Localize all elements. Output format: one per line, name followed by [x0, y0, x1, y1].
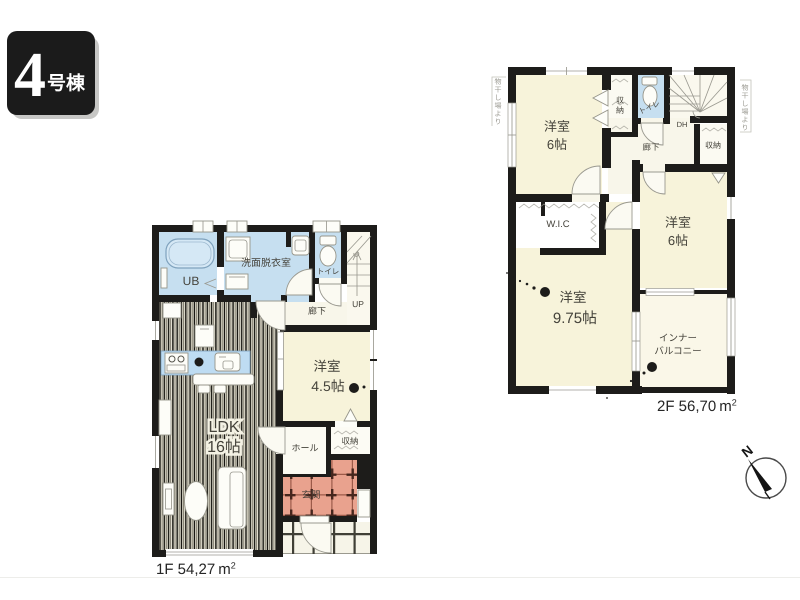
svg-text:干: 干 — [495, 86, 502, 94]
svg-text:LDK: LDK — [208, 419, 239, 436]
svg-text:り: り — [742, 124, 749, 132]
svg-text:洋室: 洋室 — [544, 119, 570, 134]
svg-text:物: 物 — [495, 78, 502, 86]
svg-text:号棟: 号棟 — [47, 73, 86, 95]
svg-text:2F 56,70m2: 2F 56,70m2 — [657, 398, 737, 416]
svg-text:UP: UP — [352, 299, 364, 309]
svg-text:干: 干 — [742, 92, 749, 100]
svg-text:4.5帖: 4.5帖 — [311, 378, 344, 394]
svg-text:収納: 収納 — [341, 436, 358, 446]
svg-text:6帖: 6帖 — [547, 137, 567, 152]
svg-text:廊下: 廊下 — [642, 142, 660, 152]
svg-text:16帖: 16帖 — [207, 438, 241, 456]
svg-text:よ: よ — [742, 116, 749, 124]
svg-text:1F 54,27m2: 1F 54,27m2 — [156, 561, 236, 579]
svg-text:よ: よ — [495, 110, 502, 118]
svg-text:収: 収 — [616, 96, 624, 105]
svg-text:UB: UB — [183, 274, 200, 288]
svg-text:り: り — [495, 118, 502, 126]
svg-text:洋室: 洋室 — [314, 359, 341, 374]
svg-text:納: 納 — [616, 106, 624, 115]
svg-text:W.I.C: W.I.C — [546, 219, 569, 230]
svg-text:トイレ: トイレ — [317, 267, 340, 276]
svg-text:玄関: 玄関 — [301, 489, 320, 501]
svg-text:バルコニー: バルコニー — [654, 346, 701, 357]
svg-text:洋室: 洋室 — [560, 290, 587, 305]
svg-text:収納: 収納 — [705, 141, 721, 150]
svg-text:洗面脱衣室: 洗面脱衣室 — [241, 257, 291, 269]
svg-text:6帖: 6帖 — [668, 233, 688, 248]
svg-text:4: 4 — [14, 39, 46, 110]
svg-text:9.75帖: 9.75帖 — [553, 310, 597, 327]
svg-text:インナー: インナー — [659, 333, 697, 344]
svg-text:洋室: 洋室 — [665, 215, 691, 230]
svg-text:場: 場 — [495, 102, 502, 110]
svg-text:し: し — [742, 100, 749, 108]
svg-text:廊下: 廊下 — [308, 306, 326, 316]
svg-text:し: し — [495, 94, 502, 102]
svg-text:DH: DH — [677, 120, 688, 129]
svg-text:ホール: ホール — [291, 443, 318, 453]
svg-text:物: 物 — [742, 84, 749, 92]
svg-text:場: 場 — [742, 108, 749, 116]
